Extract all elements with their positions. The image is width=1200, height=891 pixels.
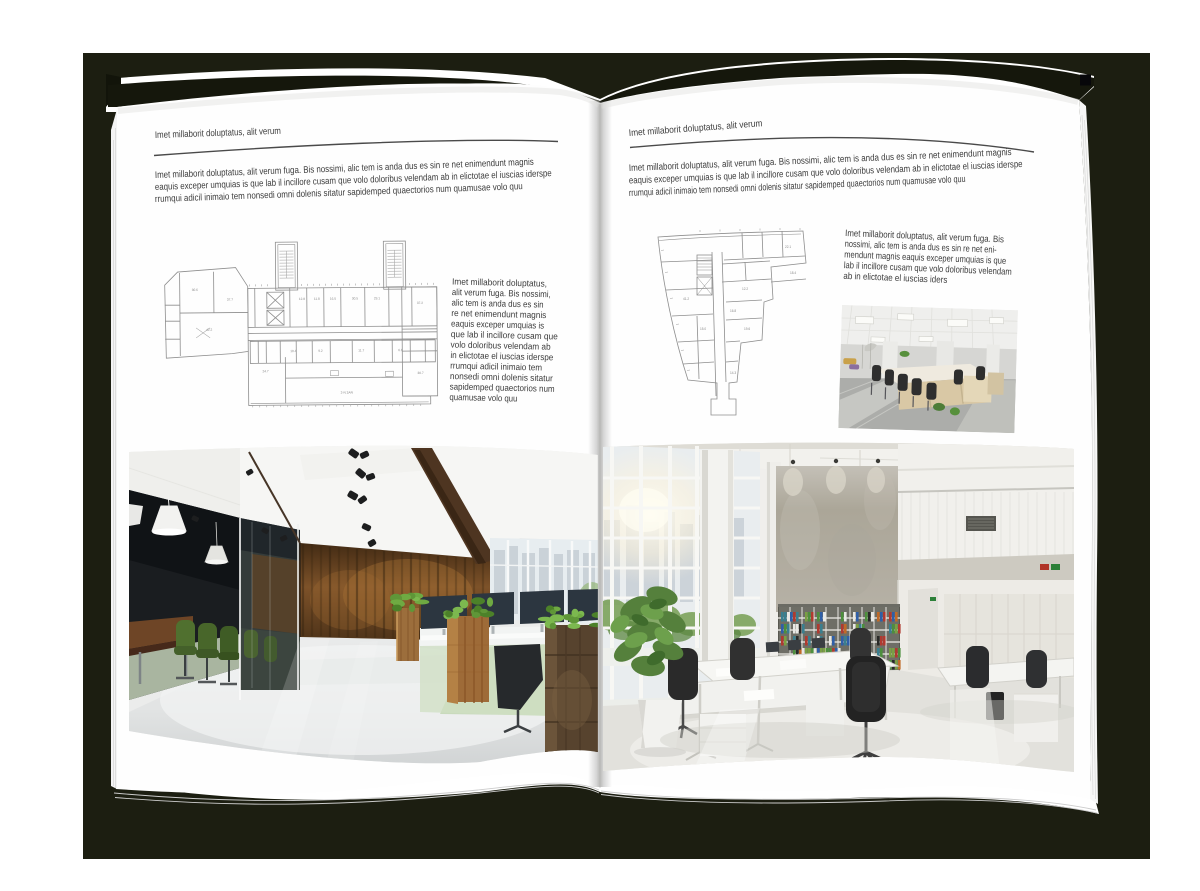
svg-text:11.8: 11.8 <box>314 297 320 301</box>
svg-text:6.8: 6.8 <box>398 348 403 352</box>
svg-text:37.7: 37.7 <box>227 298 233 302</box>
svg-text:37.2: 37.2 <box>417 301 423 305</box>
svg-text:29.1: 29.1 <box>374 296 380 300</box>
svg-text:42.2: 42.2 <box>206 328 212 332</box>
svg-text:19.6: 19.6 <box>744 327 750 331</box>
svg-text:30.7: 30.7 <box>417 371 423 375</box>
svg-text:41.2: 41.2 <box>683 297 689 301</box>
svg-text:2-N 3AN: 2-N 3AN <box>341 391 354 395</box>
svg-text:12.2: 12.2 <box>742 287 748 291</box>
svg-text:14.3: 14.3 <box>730 371 736 375</box>
svg-text:18.4: 18.4 <box>790 271 796 275</box>
svg-text:16.8: 16.8 <box>730 309 736 313</box>
svg-text:22.1: 22.1 <box>785 245 791 249</box>
svg-text:quamusae volo quu: quamusae volo quu <box>449 392 517 404</box>
svg-text:30.6: 30.6 <box>192 288 198 292</box>
svg-text:10.4: 10.4 <box>290 349 296 353</box>
svg-text:24.7: 24.7 <box>262 369 268 373</box>
svg-text:12.8: 12.8 <box>299 297 305 301</box>
svg-text:11.7: 11.7 <box>358 348 364 352</box>
svg-text:15.0: 15.0 <box>700 327 706 331</box>
svg-text:30.5: 30.5 <box>352 296 358 300</box>
svg-text:16.5: 16.5 <box>330 297 336 301</box>
svg-text:9.2: 9.2 <box>318 349 323 353</box>
